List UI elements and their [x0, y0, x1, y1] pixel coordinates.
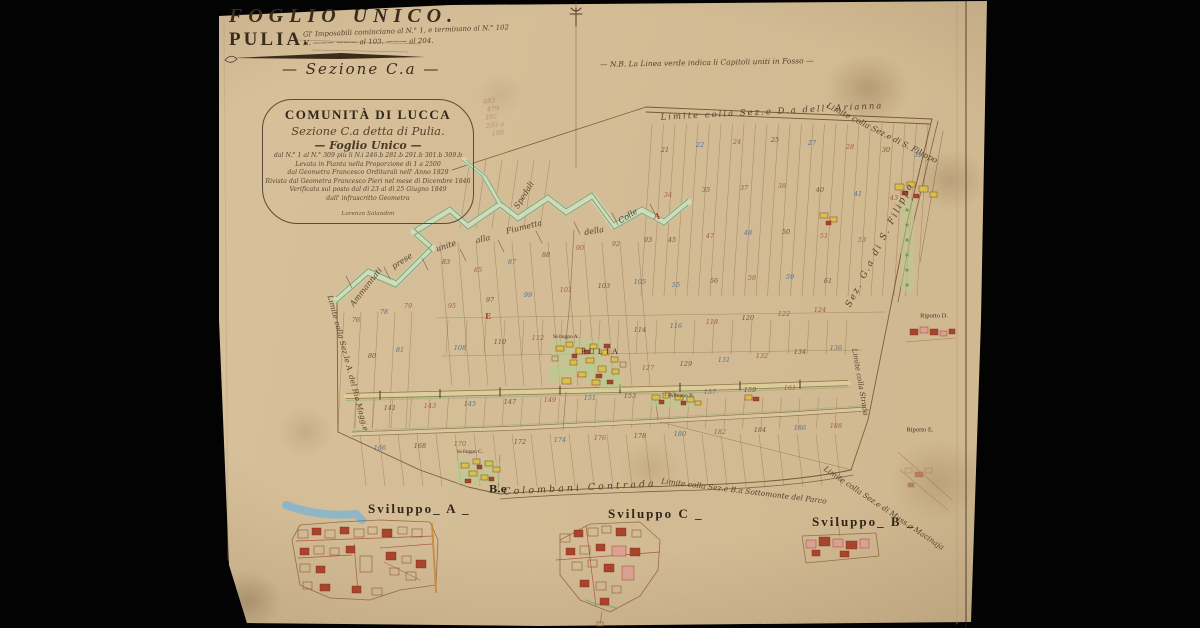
- parcel-number: 80: [368, 352, 376, 360]
- parcel-number: 134: [794, 348, 806, 356]
- parcel-number: 56: [710, 277, 718, 285]
- map-title-comune: PULIA.: [229, 29, 311, 51]
- map-label: B.e: [489, 485, 507, 496]
- sviluppo-a-caption: Sviluppo_ A _: [368, 501, 471, 517]
- parcel-number: 38: [778, 182, 786, 190]
- parcel-number: 122: [778, 310, 790, 318]
- parcel-number: 131: [718, 356, 730, 364]
- parcel-number: 172: [514, 438, 526, 446]
- parcel-number: 178: [634, 432, 646, 440]
- parcel-number: 37: [740, 184, 748, 192]
- cartouche-verification: Verificata sul posto dal dì 23 al dì 25 …: [263, 186, 473, 195]
- parcel-number: 118: [706, 318, 718, 326]
- parcel-number: 170: [454, 440, 466, 448]
- parcel-number: 182: [714, 428, 726, 436]
- parcel-number: 53: [858, 236, 866, 244]
- parcel-number: 78: [380, 308, 388, 316]
- map-label: A: [654, 211, 660, 221]
- map-label: PULIA: [581, 346, 621, 356]
- map-label: Riporto E.: [906, 427, 933, 434]
- parcel-number: 97: [486, 296, 494, 304]
- parcel-number: 114: [634, 326, 646, 334]
- map-title-foglio: FOGLIO UNICO.: [229, 5, 458, 28]
- map-label: Sviluppo A.: [553, 334, 579, 340]
- parcel-number: 30: [882, 146, 890, 154]
- cartouche-section: Sezione C.a detta di Pulia.: [263, 124, 473, 138]
- parcel-number: 141: [384, 404, 396, 412]
- parcel-number: 45: [668, 236, 676, 244]
- parcel-number: 28: [846, 143, 854, 151]
- sezione-label: — Sezione C.a —: [282, 60, 440, 78]
- parcel-number: 180: [674, 430, 686, 438]
- parcel-number: 129: [680, 360, 692, 368]
- parcel-number: 35: [702, 186, 710, 194]
- parcel-number: 166: [374, 444, 386, 452]
- parcel-number: 21: [661, 146, 669, 154]
- parcel-number: 186: [794, 424, 806, 432]
- parcel-number: 40: [816, 186, 824, 194]
- parcel-number: 159: [744, 386, 756, 394]
- map-label: Sviluppo C.: [457, 449, 483, 455]
- parcel-number: 155: [664, 390, 676, 398]
- scanned-map-canvas: FOGLIO UNICO. PULIA. Gl' Imposabili comi…: [0, 0, 1200, 628]
- parcel-number: 48: [744, 229, 752, 237]
- parcel-number: 24: [733, 138, 741, 146]
- parcel-number: 127: [642, 364, 654, 372]
- parcel-number: 149: [544, 396, 556, 404]
- map-label: E: [485, 311, 491, 321]
- parcel-number: 93: [644, 236, 652, 244]
- parcel-number: 31: [914, 151, 922, 159]
- parcel-number: 88: [542, 251, 550, 259]
- parcel-number: 174: [554, 436, 566, 444]
- parcel-number: 99: [524, 291, 532, 299]
- parcel-number: 103: [598, 282, 610, 290]
- parcel-number: 147: [504, 398, 516, 406]
- map-label: 198: [491, 128, 504, 137]
- parcel-number: 50: [782, 228, 790, 236]
- parcel-number: 90: [576, 244, 584, 252]
- parcel-number: 51: [820, 232, 828, 240]
- parcel-number: 47: [706, 232, 714, 240]
- cartouche-community: COMUNITÀ DI LUCCA: [263, 107, 473, 123]
- cartouche-foglio: — Foglio Unico —: [263, 139, 473, 152]
- parcel-number: 61: [824, 277, 832, 285]
- parcel-number: 161: [784, 384, 796, 392]
- map-label: Riporto D.: [920, 313, 948, 320]
- parcel-number: 87: [508, 258, 516, 266]
- parcel-number: 145: [464, 400, 476, 408]
- parcel-number: 76: [352, 316, 360, 324]
- parcel-number: 112: [532, 334, 544, 342]
- parcel-number: 120: [742, 314, 754, 322]
- parcel-number: 92: [612, 240, 620, 248]
- sviluppo-c-caption: Sviluppo C _: [608, 506, 704, 522]
- parcel-number: 79: [404, 302, 412, 310]
- parcel-number: 188: [830, 422, 842, 430]
- parcel-number: 136: [830, 344, 842, 352]
- cartouche-scale: Levata in Pianta nella Proporzione di 1 …: [263, 161, 473, 170]
- parcel-number: 27: [808, 139, 816, 147]
- parcel-number: 85: [474, 266, 482, 274]
- parcel-number: 59: [786, 273, 794, 281]
- parcel-number: 110: [494, 338, 506, 346]
- parcel-number: 105: [634, 278, 646, 286]
- parcel-number: 95: [448, 302, 456, 310]
- parcel-number: 25: [771, 136, 779, 144]
- parcel-number: 157: [704, 388, 716, 396]
- cartouche-signature: Lorenzo Salandini: [263, 211, 473, 217]
- parcel-number: 151: [584, 394, 596, 402]
- parcel-number: 101: [560, 286, 572, 294]
- parcel-number: 132: [756, 352, 768, 360]
- parcel-number: 83: [442, 258, 450, 266]
- roads: [346, 230, 866, 492]
- parcel-number: 55: [672, 281, 680, 289]
- parcel-number: 34: [664, 191, 672, 199]
- cartouche-parcel-range: dal N.° 1 al N.° 309 più li N.i 246.b 28…: [263, 152, 473, 161]
- cartouche-surveyor: dal Geometra Francesco Orditurali nell' …: [263, 169, 473, 178]
- parcel-number: 22: [696, 141, 704, 149]
- parcel-number: 43: [890, 194, 898, 202]
- parcel-number: 184: [754, 426, 766, 434]
- parcel-number: 108: [454, 344, 466, 352]
- cartouche-revision: Rivista dal Geometra Francesco Pieri nel…: [263, 178, 473, 187]
- parcel-number: 81: [396, 346, 404, 354]
- map-cartouche: COMUNITÀ DI LUCCA Sezione C.a detta di P…: [262, 99, 474, 224]
- parcel-number: 116: [670, 322, 682, 330]
- parcel-number: 58: [748, 274, 756, 282]
- parcel-number: 124: [814, 306, 826, 314]
- parcel-number: 143: [424, 402, 436, 410]
- parcel-number: 176: [594, 434, 606, 442]
- map-linework: [0, 0, 1200, 628]
- parcel-number: 153: [624, 392, 636, 400]
- cartouche-undersigned: dall' infrascritto Geometra: [263, 195, 473, 204]
- parcel-number: 41: [854, 190, 862, 198]
- parcel-number: 168: [414, 442, 426, 450]
